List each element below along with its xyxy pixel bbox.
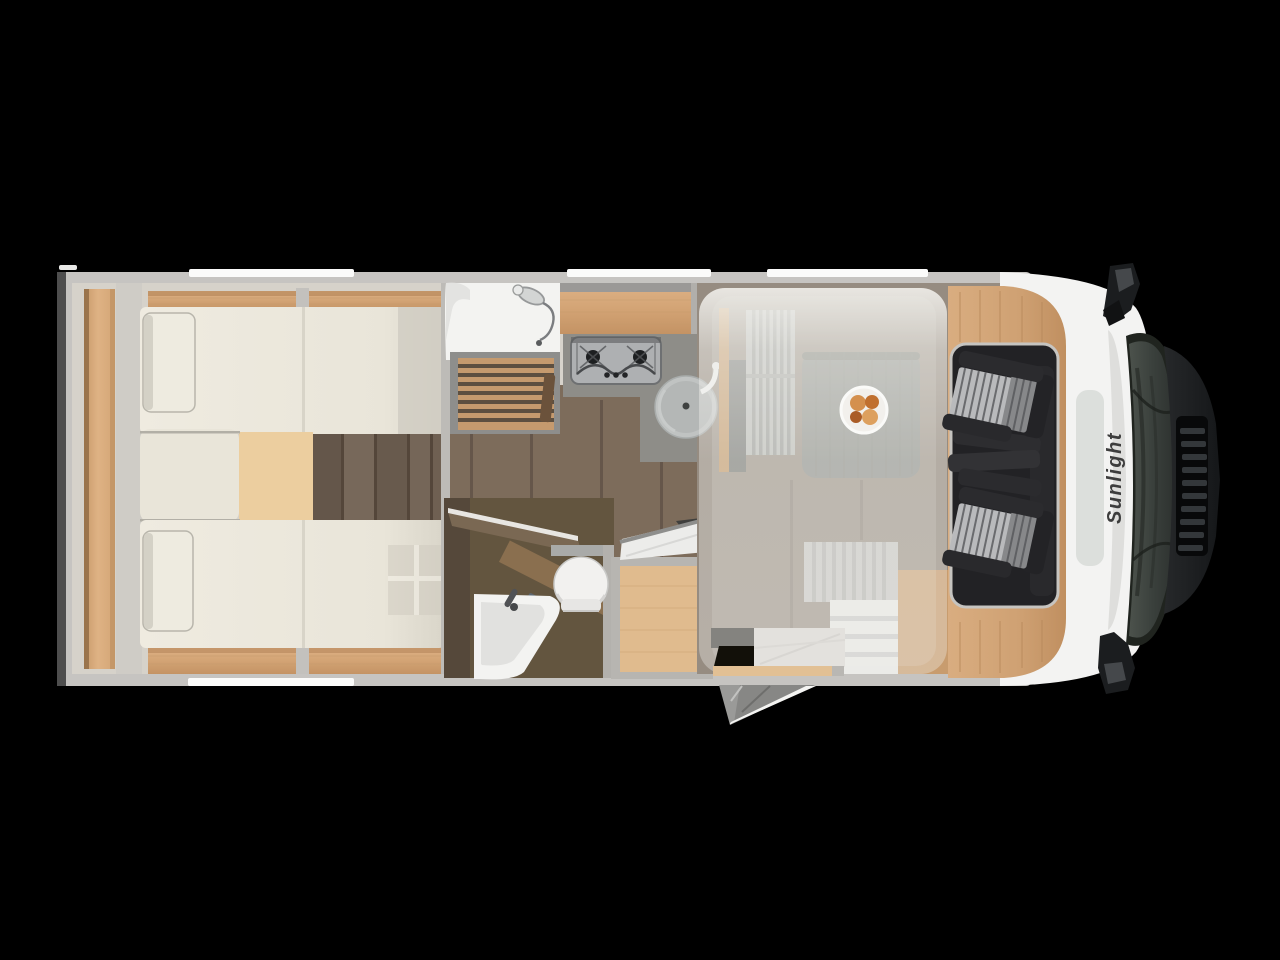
svg-text:Sunlight: Sunlight — [1104, 432, 1126, 524]
